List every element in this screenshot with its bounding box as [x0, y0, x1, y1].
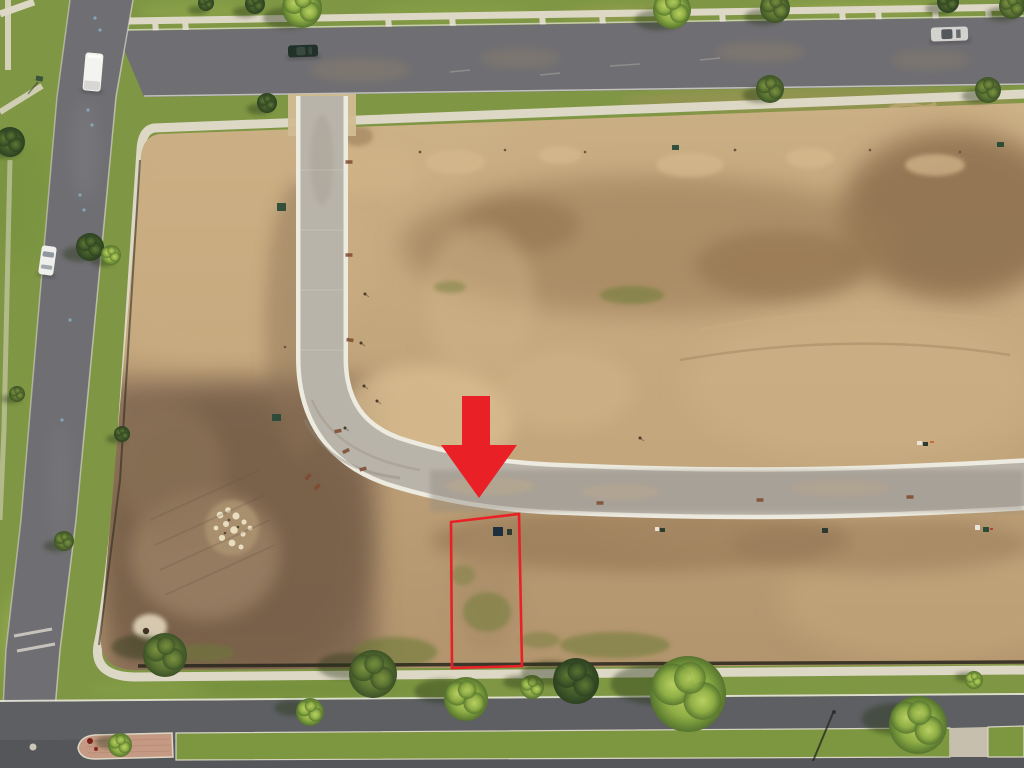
grass-median — [176, 728, 950, 760]
top-road — [116, 16, 1024, 97]
dark-green-car — [287, 44, 320, 59]
aerial-photo-screenshot — [0, 0, 1024, 768]
hydrant — [87, 738, 93, 744]
silver-car — [930, 26, 971, 43]
manhole — [30, 744, 37, 751]
aerial-photo — [0, 0, 1024, 768]
median-crosswalk-cut — [950, 727, 988, 757]
